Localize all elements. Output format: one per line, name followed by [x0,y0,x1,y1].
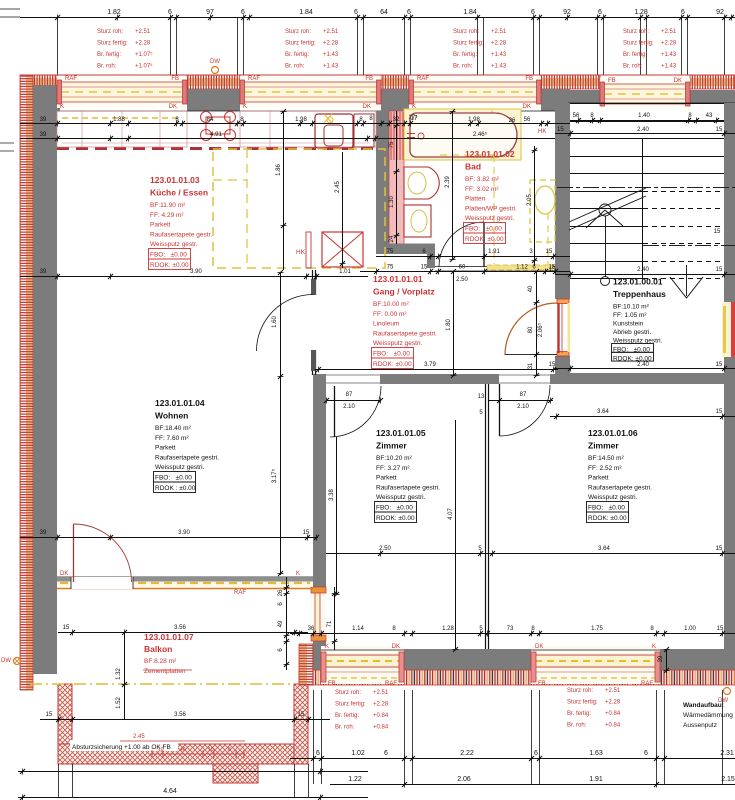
svg-text:Sturz roh:: Sturz roh: [335,690,361,696]
svg-text:RDOK: ±0.00: RDOK: ±0.00 [150,262,189,269]
svg-text:1.98: 1.98 [468,117,480,123]
svg-text:2.50: 2.50 [456,277,468,283]
svg-text:FBO: ±0.00: FBO: ±0.00 [373,351,410,358]
svg-text:FBO: ±0.00: FBO: ±0.00 [465,226,502,233]
svg-text:80: 80 [528,326,534,333]
svg-text:75: 75 [387,265,394,271]
svg-text:24: 24 [389,235,395,242]
svg-text:1.91: 1.91 [488,249,500,255]
svg-text:97: 97 [206,9,214,16]
svg-text:4.91: 4.91 [210,132,222,138]
svg-text:Balkon: Balkon [144,644,172,654]
svg-text:4.64: 4.64 [163,788,177,795]
svg-text:Br. roh:: Br. roh: [623,64,643,70]
svg-text:FBO: ±0.00: FBO: ±0.00 [155,475,192,482]
svg-text:39: 39 [658,655,664,662]
svg-text:RAF: RAF [417,76,429,82]
svg-text:15: 15 [303,530,310,536]
svg-text:87: 87 [520,392,527,398]
svg-text:FBO: ±0.00: FBO: ±0.00 [588,505,625,512]
svg-text:DK: DK [535,644,543,650]
svg-text:+0.84: +0.84 [605,723,621,729]
svg-text:Br. fertig:: Br. fertig: [335,713,359,719]
svg-text:FB: FB [328,681,336,687]
svg-text:92: 92 [563,9,571,16]
svg-text:123.01.01.04: 123.01.01.04 [155,398,205,408]
svg-text:Platten/WP gestri.: Platten/WP gestri. [465,205,517,212]
svg-text:123.01.01.03: 123.01.01.03 [150,175,200,185]
svg-text:60: 60 [459,265,466,271]
svg-text:K: K [652,644,656,650]
svg-text:39: 39 [40,117,47,123]
svg-text:RAF: RAF [65,76,77,82]
svg-text:K: K [243,104,247,110]
svg-text:1.14: 1.14 [352,626,364,632]
svg-text:6: 6 [681,9,685,16]
svg-text:3.79: 3.79 [424,362,436,368]
svg-text:39: 39 [40,269,47,275]
svg-text:Weissputz gestri.: Weissputz gestri. [373,340,423,347]
svg-text:HK: HK [538,129,546,135]
svg-text:K: K [296,571,300,577]
svg-text:Raufasertapete gestri.: Raufasertapete gestri. [376,484,440,491]
svg-text:Raufasertapete gestri.: Raufasertapete gestri. [373,330,437,337]
svg-text:Wohnen: Wohnen [155,411,188,421]
svg-text:Weissputz gestr.: Weissputz gestr. [150,241,198,248]
svg-text:2.05: 2.05 [527,194,533,206]
svg-text:64: 64 [380,9,388,16]
svg-text:Absturzsicherung +1.00 ab OK F: Absturzsicherung +1.00 ab OK FB [72,744,171,751]
svg-text:+1.43: +1.43 [661,64,677,70]
svg-text:Sturz roh:: Sturz roh: [285,29,311,35]
svg-text:1.01: 1.01 [339,269,351,275]
svg-text:1.82: 1.82 [107,9,121,16]
svg-text:+0.84: +0.84 [605,711,621,717]
svg-text:BF: 3.82 m²: BF: 3.82 m² [465,176,500,183]
svg-text:1.22: 1.22 [348,776,362,783]
svg-text:84: 84 [207,117,214,123]
svg-text:4.07: 4.07 [448,508,454,520]
svg-text:+2.51: +2.51 [661,29,677,35]
svg-text:31: 31 [528,362,534,369]
svg-text:Linoleum: Linoleum [373,321,399,328]
svg-text:Sturz roh:: Sturz roh: [623,29,649,35]
svg-text:Platten: Platten [465,196,486,203]
svg-text:2.40: 2.40 [637,267,649,273]
svg-text:Wärmedämmung: Wärmedämmung [683,712,733,719]
svg-text:49: 49 [278,620,284,627]
svg-text:BF:10.10 m²: BF:10.10 m² [613,304,650,311]
svg-text:15: 15 [63,625,70,631]
svg-text:2.15: 2.15 [721,776,735,783]
svg-text:BF:18.40 m²: BF:18.40 m² [155,425,192,432]
svg-text:1.91: 1.91 [589,776,603,783]
svg-text:123.01.01.02: 123.01.01.02 [465,149,515,159]
svg-text:Parkett: Parkett [376,475,397,482]
svg-text:Br. fertig:: Br. fertig: [285,52,309,58]
svg-text:Br. fertig:: Br. fertig: [623,52,647,58]
svg-text:2.50: 2.50 [379,546,391,552]
svg-text:123.01.01.06: 123.01.01.06 [588,428,638,438]
svg-text:Br. fertig:: Br. fertig: [453,52,477,58]
svg-text:15: 15 [298,712,305,718]
svg-text:Weissputz gestri.: Weissputz gestri. [155,464,205,471]
svg-text:K: K [60,104,64,110]
svg-text:15: 15 [421,265,428,271]
svg-text:RDOK : ±0.00: RDOK : ±0.00 [155,485,196,492]
svg-text:Sturz roh:: Sturz roh: [97,29,123,35]
svg-text:2.45: 2.45 [335,181,341,193]
svg-text:40: 40 [180,747,186,753]
svg-text:1.40: 1.40 [638,113,650,119]
svg-text:6: 6 [407,9,411,16]
svg-text:Raufasertapete gestri.: Raufasertapete gestri. [588,484,652,491]
svg-text:15: 15 [46,712,53,718]
svg-text:39: 39 [40,530,47,536]
svg-text:DK: DK [392,644,400,650]
svg-text:73: 73 [507,626,514,632]
svg-text:Zimmer: Zimmer [588,441,619,451]
svg-text:+2.28: +2.28 [661,41,677,47]
svg-text:40: 40 [528,285,534,292]
svg-text:Sturz fertig:: Sturz fertig: [285,41,316,47]
svg-text:Parkett: Parkett [155,445,176,452]
svg-text:Br. roh:: Br. roh: [567,723,587,729]
svg-text:2.22: 2.22 [460,750,474,757]
svg-text:36: 36 [308,626,315,632]
svg-text:+1.43: +1.43 [323,52,339,58]
svg-text:BF:14.50 m²: BF:14.50 m² [588,455,625,462]
svg-text:RDOK: ±0.00: RDOK: ±0.00 [376,515,415,522]
svg-text:15: 15 [716,127,723,133]
svg-text:+2.51: +2.51 [491,29,507,35]
svg-text:26: 26 [278,589,284,596]
svg-text:Sturz fertig:: Sturz fertig: [335,702,366,708]
svg-text:3.38: 3.38 [329,489,335,501]
svg-text:RDOK: ±0.00: RDOK: ±0.00 [373,361,412,368]
svg-text:43: 43 [706,113,713,119]
svg-text:56: 56 [524,117,531,123]
svg-text:Raufasertapete gestr.: Raufasertapete gestr. [150,231,212,238]
svg-text:+2.28: +2.28 [135,41,151,47]
svg-text:Parkett: Parkett [150,222,171,229]
svg-text:10: 10 [208,747,214,753]
svg-text:+0.84: +0.84 [373,725,389,731]
svg-text:1.75: 1.75 [591,626,603,632]
svg-text:+0.84: +0.84 [373,713,389,719]
svg-text:Abrieb gestri.: Abrieb gestri. [613,329,651,336]
svg-text:Zimmer: Zimmer [376,441,407,451]
svg-text:FBO: ±0.00: FBO: ±0.00 [150,252,187,259]
svg-text:BF:10.20 m²: BF:10.20 m² [376,455,413,462]
svg-text:15: 15 [546,249,553,255]
svg-text:K: K [325,644,329,650]
svg-text:Br. roh:: Br. roh: [285,64,305,70]
svg-text:Kunststein: Kunststein [613,321,644,328]
svg-text:6: 6 [534,750,538,757]
svg-text:RAF: RAF [248,76,260,82]
svg-text:15: 15 [716,409,723,415]
svg-text:8: 8 [228,747,231,753]
svg-text:FF: 3.27 m²: FF: 3.27 m² [376,465,410,472]
svg-text:DW: DW [1,658,11,664]
svg-text:26: 26 [509,118,516,124]
svg-text:13: 13 [478,394,485,400]
svg-text:DK: DK [674,78,682,84]
svg-text:+1.43: +1.43 [661,52,677,58]
svg-text:123.01.01.05: 123.01.01.05 [376,428,426,438]
svg-text:DK: DK [60,571,68,577]
svg-text:71: 71 [327,620,333,627]
svg-text:17: 17 [411,116,418,122]
svg-text:Sturz fertig:: Sturz fertig: [97,41,128,47]
svg-text:56: 56 [573,113,580,119]
svg-text:Sturz roh:: Sturz roh: [567,688,593,694]
svg-text:3.90: 3.90 [178,530,190,536]
svg-text:Br. roh:: Br. roh: [335,725,355,731]
svg-text:+1.07⁵: +1.07⁵ [135,63,153,70]
svg-text:RAF: RAF [641,681,653,687]
svg-text:1.28: 1.28 [634,9,648,16]
svg-text:123.01.01.01: 123.01.01.01 [373,274,423,284]
svg-text:BF:11.90 m²: BF:11.90 m² [150,202,186,209]
svg-text:1.60: 1.60 [272,316,278,328]
svg-text:Sturz roh:: Sturz roh: [453,29,479,35]
svg-text:39: 39 [40,132,47,138]
svg-text:1.32: 1.32 [116,668,122,680]
svg-text:2.10: 2.10 [517,404,529,410]
svg-text:1.00: 1.00 [684,626,696,632]
svg-text:1.86: 1.86 [276,164,282,176]
svg-text:Sturz fertig:: Sturz fertig: [453,41,484,47]
svg-text:1.84: 1.84 [299,9,313,16]
svg-text:+1.43: +1.43 [323,64,339,70]
svg-text:1.12: 1.12 [516,265,528,271]
svg-text:+2.51: +2.51 [135,29,151,35]
svg-text:HK: HK [296,249,306,256]
svg-text:RAF: RAF [385,681,397,687]
svg-text:1.63: 1.63 [589,750,603,757]
svg-text:Gang / Vorplatz: Gang / Vorplatz [373,287,435,297]
svg-text:Raufasertapete gestri.: Raufasertapete gestri. [155,454,219,461]
svg-text:15: 15 [549,265,556,271]
svg-text:1.28: 1.28 [442,626,454,632]
svg-text:1.80: 1.80 [446,319,452,331]
svg-text:+2.28: +2.28 [605,700,621,706]
svg-text:6: 6 [354,9,358,16]
svg-text:Br. fertig:: Br. fertig: [97,52,121,58]
svg-text:DK: DK [523,104,531,110]
svg-text:6: 6 [316,750,320,757]
svg-text:Weissputz gestri.: Weissputz gestri. [588,494,638,501]
svg-text:FB: FB [365,76,373,82]
svg-text:FF: 0.00 m²: FF: 0.00 m² [373,311,407,318]
svg-text:6: 6 [531,9,535,16]
svg-text:1.52: 1.52 [116,697,122,709]
svg-text:Br. roh:: Br. roh: [453,64,473,70]
svg-text:Parkett: Parkett [588,475,609,482]
svg-text:6: 6 [241,9,245,16]
svg-text:3.56: 3.56 [174,625,186,631]
svg-text:1.88: 1.88 [113,117,125,123]
svg-text:+1.07⁵: +1.07⁵ [135,51,153,58]
svg-text:Sturz fertig:: Sturz fertig: [623,41,654,47]
svg-text:1.30: 1.30 [389,196,395,208]
svg-text:BF:10.00 m²: BF:10.00 m² [373,301,410,308]
svg-text:FF: 7.60 m²: FF: 7.60 m² [155,435,189,442]
svg-text:15: 15 [716,267,723,273]
svg-text:123.01.00.01: 123.01.00.01 [613,277,663,287]
svg-text:10: 10 [158,747,164,753]
svg-text:75: 75 [389,141,395,148]
svg-text:6: 6 [384,750,388,757]
svg-text:Bad: Bad [465,162,481,172]
svg-text:Küche / Essen: Küche / Essen [150,188,208,198]
svg-text:+1.43: +1.43 [491,52,507,58]
svg-text:+2.28: +2.28 [373,702,389,708]
svg-text:BF:8.28 m²: BF:8.28 m² [144,658,177,665]
svg-text:FB: FB [525,76,533,82]
svg-text:15: 15 [716,546,723,552]
svg-text:3.17⁵: 3.17⁵ [271,468,278,483]
svg-text:1.84: 1.84 [463,9,477,16]
svg-text:Weissputz gestri.: Weissputz gestri. [376,494,426,501]
svg-text:Treppenhaus: Treppenhaus [613,289,666,299]
svg-text:+2.51: +2.51 [373,690,389,696]
svg-text:15: 15 [549,362,556,368]
svg-text:2.45: 2.45 [133,734,145,740]
svg-text:3.64: 3.64 [597,409,609,415]
svg-text:RAF: RAF [234,590,246,596]
svg-text:Weissputz gestri.: Weissputz gestri. [465,215,515,222]
svg-text:+2.28: +2.28 [491,41,507,47]
svg-text:6: 6 [168,9,172,16]
svg-text:FF: 4.29 m²: FF: 4.29 m² [150,212,184,219]
svg-text:FB: FB [608,78,616,84]
svg-text:3.56: 3.56 [174,712,186,718]
svg-text:87: 87 [346,392,353,398]
svg-text:DK: DK [363,104,371,110]
svg-text:DW: DW [718,698,728,704]
svg-text:3.64: 3.64 [598,546,610,552]
svg-text:123.01.01.07: 123.01.01.07 [144,632,194,642]
svg-text:DK: DK [169,104,177,110]
svg-text:6: 6 [644,750,648,757]
svg-text:2.46⁵: 2.46⁵ [473,131,488,138]
svg-text:Zementplatten: Zementplatten [144,668,186,675]
svg-text:DW: DW [210,59,220,65]
svg-text:RDOK: ±0.00: RDOK: ±0.00 [465,236,504,243]
svg-text:FBO: ±0.00: FBO: ±0.00 [376,505,413,512]
svg-text:FB: FB [538,681,546,687]
svg-text:15: 15 [717,626,724,632]
svg-text:2.06⁵: 2.06⁵ [537,322,544,337]
svg-text:92: 92 [716,9,724,16]
svg-text:2.40: 2.40 [637,127,649,133]
svg-text:+2.51: +2.51 [323,29,339,35]
svg-text:Br. fertig:: Br. fertig: [567,711,591,717]
svg-text:2.40: 2.40 [637,362,649,368]
svg-text:+2.28: +2.28 [323,41,339,47]
svg-text:Sturz fertig:: Sturz fertig: [567,700,598,706]
svg-text:15: 15 [716,362,723,368]
svg-text:15: 15 [557,127,564,133]
svg-text:2.06: 2.06 [457,776,471,783]
svg-text:15: 15 [714,229,721,235]
svg-text:+2.51: +2.51 [605,688,621,694]
svg-text:FF: 3.02 m²: FF: 3.02 m² [465,186,499,193]
svg-text:RDOK: ±0.00: RDOK: ±0.00 [588,515,627,522]
svg-text:FF: 1.05 m²: FF: 1.05 m² [613,312,647,319]
svg-text:RDOK: ±0.00: RDOK: ±0.00 [613,355,652,362]
svg-text:FB: FB [171,76,179,82]
svg-text:Aussenputz: Aussenputz [683,722,717,729]
svg-text:2.10: 2.10 [343,404,355,410]
svg-text:3.90: 3.90 [190,269,202,275]
svg-text:2.39: 2.39 [445,176,451,188]
svg-text:+1.43: +1.43 [491,64,507,70]
svg-text:1.98: 1.98 [295,117,307,123]
svg-text:6: 6 [598,9,602,16]
svg-text:FF: 2.52 m²: FF: 2.52 m² [588,465,622,472]
svg-text:1.02: 1.02 [351,750,365,757]
svg-text:75: 75 [387,249,394,255]
svg-text:Br. roh:: Br. roh: [97,64,117,70]
